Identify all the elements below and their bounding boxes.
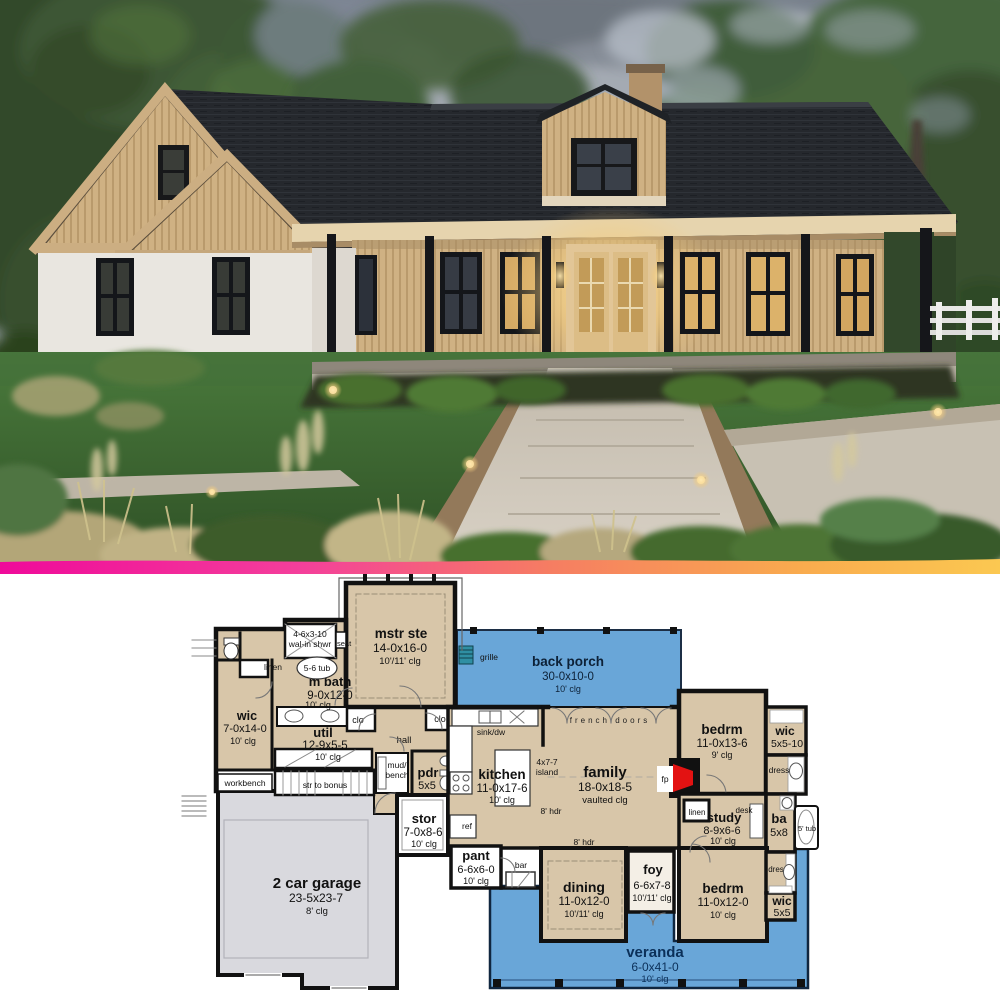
svg-text:2 car garage: 2 car garage bbox=[273, 875, 361, 892]
svg-text:wic: wic bbox=[771, 894, 792, 908]
svg-text:dining: dining bbox=[563, 879, 605, 895]
svg-text:5-6 tub: 5-6 tub bbox=[304, 663, 331, 673]
svg-text:30-0x10-0: 30-0x10-0 bbox=[542, 671, 594, 683]
svg-text:back porch: back porch bbox=[532, 654, 604, 669]
svg-text:bedrm: bedrm bbox=[702, 881, 743, 896]
svg-text:str to bonus: str to bonus bbox=[303, 780, 347, 790]
svg-text:8' clg: 8' clg bbox=[306, 906, 328, 917]
svg-text:8' hdr: 8' hdr bbox=[574, 837, 595, 847]
svg-text:fp: fp bbox=[661, 774, 668, 784]
svg-text:kitchen: kitchen bbox=[478, 767, 525, 782]
svg-text:linen: linen bbox=[264, 662, 282, 672]
svg-text:10' clg: 10' clg bbox=[230, 736, 256, 746]
svg-text:10'/11' clg: 10'/11' clg bbox=[564, 909, 603, 919]
svg-text:foy: foy bbox=[643, 862, 663, 877]
svg-text:family: family bbox=[583, 764, 627, 781]
svg-text:11-0x17-6: 11-0x17-6 bbox=[477, 783, 528, 795]
svg-text:ba: ba bbox=[771, 811, 787, 826]
svg-text:11-0x12-0: 11-0x12-0 bbox=[559, 896, 610, 908]
svg-text:10'/11' clg: 10'/11' clg bbox=[632, 893, 671, 903]
svg-text:10' clg: 10' clg bbox=[463, 876, 489, 886]
svg-text:10' clg: 10' clg bbox=[710, 910, 736, 920]
svg-text:pdr: pdr bbox=[418, 765, 439, 780]
svg-text:10' clg: 10' clg bbox=[641, 974, 668, 985]
svg-text:5x5-10: 5x5-10 bbox=[771, 738, 803, 750]
svg-text:5x5: 5x5 bbox=[774, 907, 791, 919]
svg-text:wic: wic bbox=[774, 724, 795, 738]
svg-text:11-0x13-6: 11-0x13-6 bbox=[697, 738, 748, 750]
svg-text:linen: linen bbox=[689, 808, 706, 817]
svg-text:wal-in shwr: wal-in shwr bbox=[288, 639, 332, 649]
svg-text:wic: wic bbox=[236, 709, 257, 723]
svg-text:23-5x23-7: 23-5x23-7 bbox=[289, 891, 343, 905]
svg-text:10' clg: 10' clg bbox=[555, 684, 581, 694]
svg-text:ref: ref bbox=[462, 821, 473, 831]
svg-text:9' clg: 9' clg bbox=[712, 750, 733, 760]
svg-text:mud/: mud/ bbox=[388, 760, 408, 770]
svg-text:12-9x5-5: 12-9x5-5 bbox=[302, 740, 347, 752]
svg-text:4-6x3-10: 4-6x3-10 bbox=[293, 629, 327, 639]
svg-text:desk: desk bbox=[736, 806, 754, 815]
svg-text:util: util bbox=[313, 725, 333, 740]
svg-text:7-0x14-0: 7-0x14-0 bbox=[223, 723, 266, 735]
svg-text:6-6x6-0: 6-6x6-0 bbox=[457, 864, 494, 876]
svg-text:dress: dress bbox=[769, 765, 790, 775]
svg-text:vaulted clg: vaulted clg bbox=[582, 795, 627, 806]
svg-text:bedrm: bedrm bbox=[701, 722, 742, 737]
svg-text:grille: grille bbox=[480, 652, 498, 662]
svg-text:11-0x12-0: 11-0x12-0 bbox=[698, 897, 749, 909]
svg-text:6-0x41-0: 6-0x41-0 bbox=[631, 960, 679, 974]
svg-text:10' clg: 10' clg bbox=[710, 836, 736, 846]
svg-text:10' clg: 10' clg bbox=[305, 700, 331, 710]
svg-text:workbench: workbench bbox=[223, 778, 265, 788]
svg-text:5x5: 5x5 bbox=[418, 780, 436, 792]
svg-text:veranda: veranda bbox=[626, 944, 684, 961]
svg-text:10' clg: 10' clg bbox=[489, 795, 515, 805]
svg-text:10' clg: 10' clg bbox=[411, 839, 437, 849]
svg-text:14-0x16-0: 14-0x16-0 bbox=[373, 641, 427, 655]
svg-text:7-0x8-6: 7-0x8-6 bbox=[404, 827, 443, 839]
svg-text:island: island bbox=[536, 767, 558, 777]
svg-text:seat: seat bbox=[337, 639, 352, 648]
svg-text:8' hdr: 8' hdr bbox=[541, 806, 562, 816]
svg-text:stor: stor bbox=[412, 811, 437, 826]
svg-text:4x7-7: 4x7-7 bbox=[536, 757, 558, 767]
svg-text:5x8: 5x8 bbox=[770, 827, 788, 839]
svg-text:18-0x18-5: 18-0x18-5 bbox=[578, 780, 632, 794]
svg-text:bench: bench bbox=[385, 770, 408, 780]
svg-text:6-6x7-8: 6-6x7-8 bbox=[633, 880, 670, 892]
svg-text:sink/dw: sink/dw bbox=[477, 727, 506, 737]
svg-text:5' tub: 5' tub bbox=[798, 824, 816, 833]
svg-text:pant: pant bbox=[462, 848, 490, 863]
svg-text:clo: clo bbox=[434, 714, 446, 724]
svg-text:10' clg: 10' clg bbox=[315, 752, 341, 762]
svg-text:10'/11' clg: 10'/11' clg bbox=[379, 656, 420, 667]
svg-text:mstr ste: mstr ste bbox=[375, 626, 428, 641]
svg-text:bar: bar bbox=[515, 860, 527, 870]
